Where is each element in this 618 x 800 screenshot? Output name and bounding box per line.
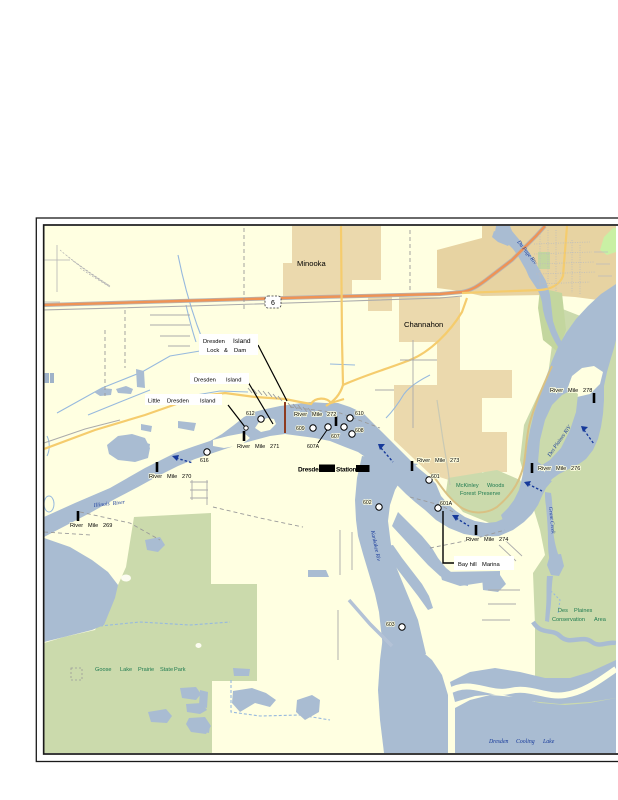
svg-text:Lake: Lake <box>120 667 132 673</box>
svg-text:Lake: Lake <box>542 739 555 745</box>
svg-text:River: River <box>550 388 563 394</box>
svg-text:269: 269 <box>103 523 112 529</box>
svg-text:616: 616 <box>200 458 209 464</box>
svg-text:Dam: Dam <box>234 348 246 354</box>
svg-text:Woods: Woods <box>487 483 505 489</box>
svg-text:Forest: Forest <box>460 491 476 497</box>
svg-text:Island: Island <box>200 399 215 405</box>
svg-text:274: 274 <box>499 537 508 543</box>
svg-text:Mile: Mile <box>312 412 322 418</box>
svg-text:Dresden: Dresden <box>298 467 322 474</box>
svg-text:6: 6 <box>271 300 275 307</box>
svg-text:McKinley: McKinley <box>456 483 479 489</box>
svg-text:River: River <box>466 537 479 543</box>
svg-text:601: 601 <box>431 474 440 480</box>
svg-text:Park: Park <box>174 667 186 673</box>
svg-text:Dresden: Dresden <box>488 739 509 745</box>
svg-text:603: 603 <box>386 622 395 628</box>
svg-text:276: 276 <box>571 466 580 472</box>
svg-text:609: 609 <box>296 426 305 432</box>
svg-text:610: 610 <box>355 411 364 417</box>
svg-text:Channahon: Channahon <box>404 320 443 329</box>
svg-text:Dresden: Dresden <box>194 378 216 384</box>
svg-text:Mile: Mile <box>435 458 445 464</box>
svg-text:Little: Little <box>148 399 160 405</box>
svg-text:608: 608 <box>355 428 364 434</box>
svg-text:Mile: Mile <box>484 537 494 543</box>
svg-text:271: 271 <box>270 444 279 450</box>
svg-text:607: 607 <box>331 434 340 440</box>
svg-text:Bay hill: Bay hill <box>458 562 477 568</box>
svg-text:River: River <box>417 458 430 464</box>
svg-text:&: & <box>224 348 228 354</box>
svg-text:Mile: Mile <box>88 523 98 529</box>
svg-text:Island: Island <box>233 338 251 345</box>
svg-text:Mile: Mile <box>568 388 578 394</box>
svg-text:278: 278 <box>583 388 592 394</box>
svg-text:601A: 601A <box>440 501 453 507</box>
svg-text:602: 602 <box>363 500 372 506</box>
svg-text:Minooka: Minooka <box>297 259 326 268</box>
svg-text:Plaines: Plaines <box>574 608 593 614</box>
svg-text:Island: Island <box>226 378 241 384</box>
svg-text:Dresden: Dresden <box>167 399 189 405</box>
svg-text:Station: Station <box>336 467 357 474</box>
svg-text:Prairie: Prairie <box>138 667 154 673</box>
svg-text:612: 612 <box>246 411 255 417</box>
svg-text:River: River <box>70 523 83 529</box>
svg-text:273: 273 <box>450 458 459 464</box>
svg-text:River: River <box>237 444 250 450</box>
svg-text:Mile: Mile <box>556 466 566 472</box>
svg-text:Mile: Mile <box>255 444 265 450</box>
svg-text:Cooling: Cooling <box>516 739 535 745</box>
svg-text:Marina: Marina <box>482 562 500 568</box>
svg-text:Preserve: Preserve <box>478 491 500 497</box>
svg-text:Goose: Goose <box>95 667 111 673</box>
svg-text:Des: Des <box>558 608 568 614</box>
svg-text:Area: Area <box>594 617 607 623</box>
svg-text:272: 272 <box>327 412 336 418</box>
svg-text:607A: 607A <box>307 444 320 450</box>
svg-text:Conservation: Conservation <box>552 617 585 623</box>
svg-text:River: River <box>294 412 307 418</box>
svg-text:River: River <box>538 466 551 472</box>
svg-text:270: 270 <box>182 474 191 480</box>
svg-text:Lock: Lock <box>207 348 219 354</box>
svg-text:Dresden: Dresden <box>203 339 225 345</box>
svg-text:Mile: Mile <box>167 474 177 480</box>
svg-text:River: River <box>149 474 162 480</box>
svg-text:State: State <box>160 667 173 673</box>
